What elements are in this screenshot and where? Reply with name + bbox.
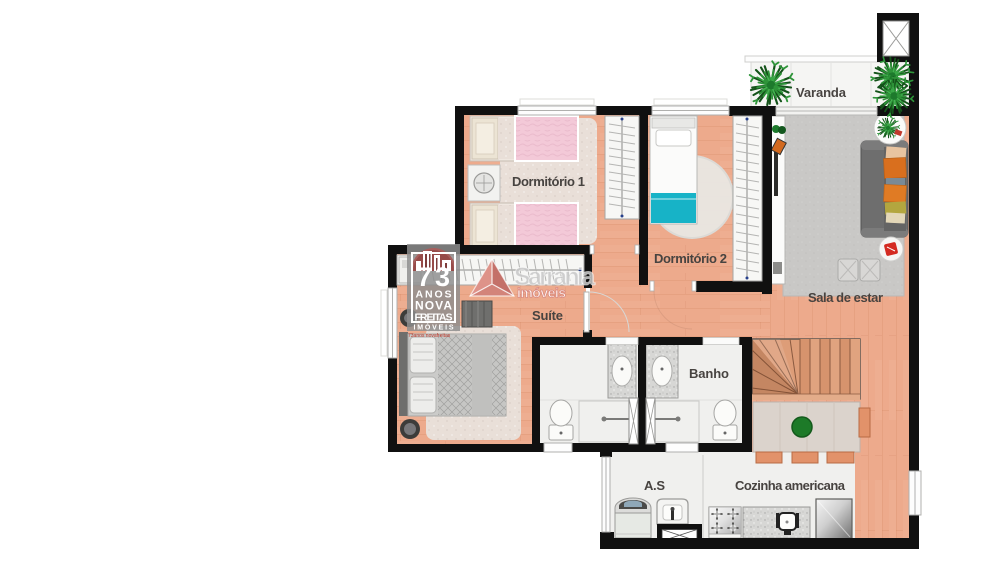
svg-text:Cozinha americana: Cozinha americana	[735, 478, 846, 493]
svg-text:A.S: A.S	[644, 478, 665, 493]
svg-text:73anos novafreitas: 73anos novafreitas	[408, 333, 451, 339]
svg-text:imóveis: imóveis	[517, 285, 566, 301]
svg-text:FREITAS: FREITAS	[415, 312, 453, 324]
svg-text:NOVA: NOVA	[415, 299, 452, 313]
svg-text:Varanda: Varanda	[796, 85, 847, 100]
svg-text:Dormitório 2: Dormitório 2	[654, 251, 727, 266]
svg-text:Sala de estar: Sala de estar	[808, 290, 883, 305]
svg-text:Suíte: Suíte	[532, 308, 563, 323]
svg-text:Banho: Banho	[689, 366, 729, 381]
svg-text:Dormitório 1: Dormitório 1	[512, 174, 585, 189]
